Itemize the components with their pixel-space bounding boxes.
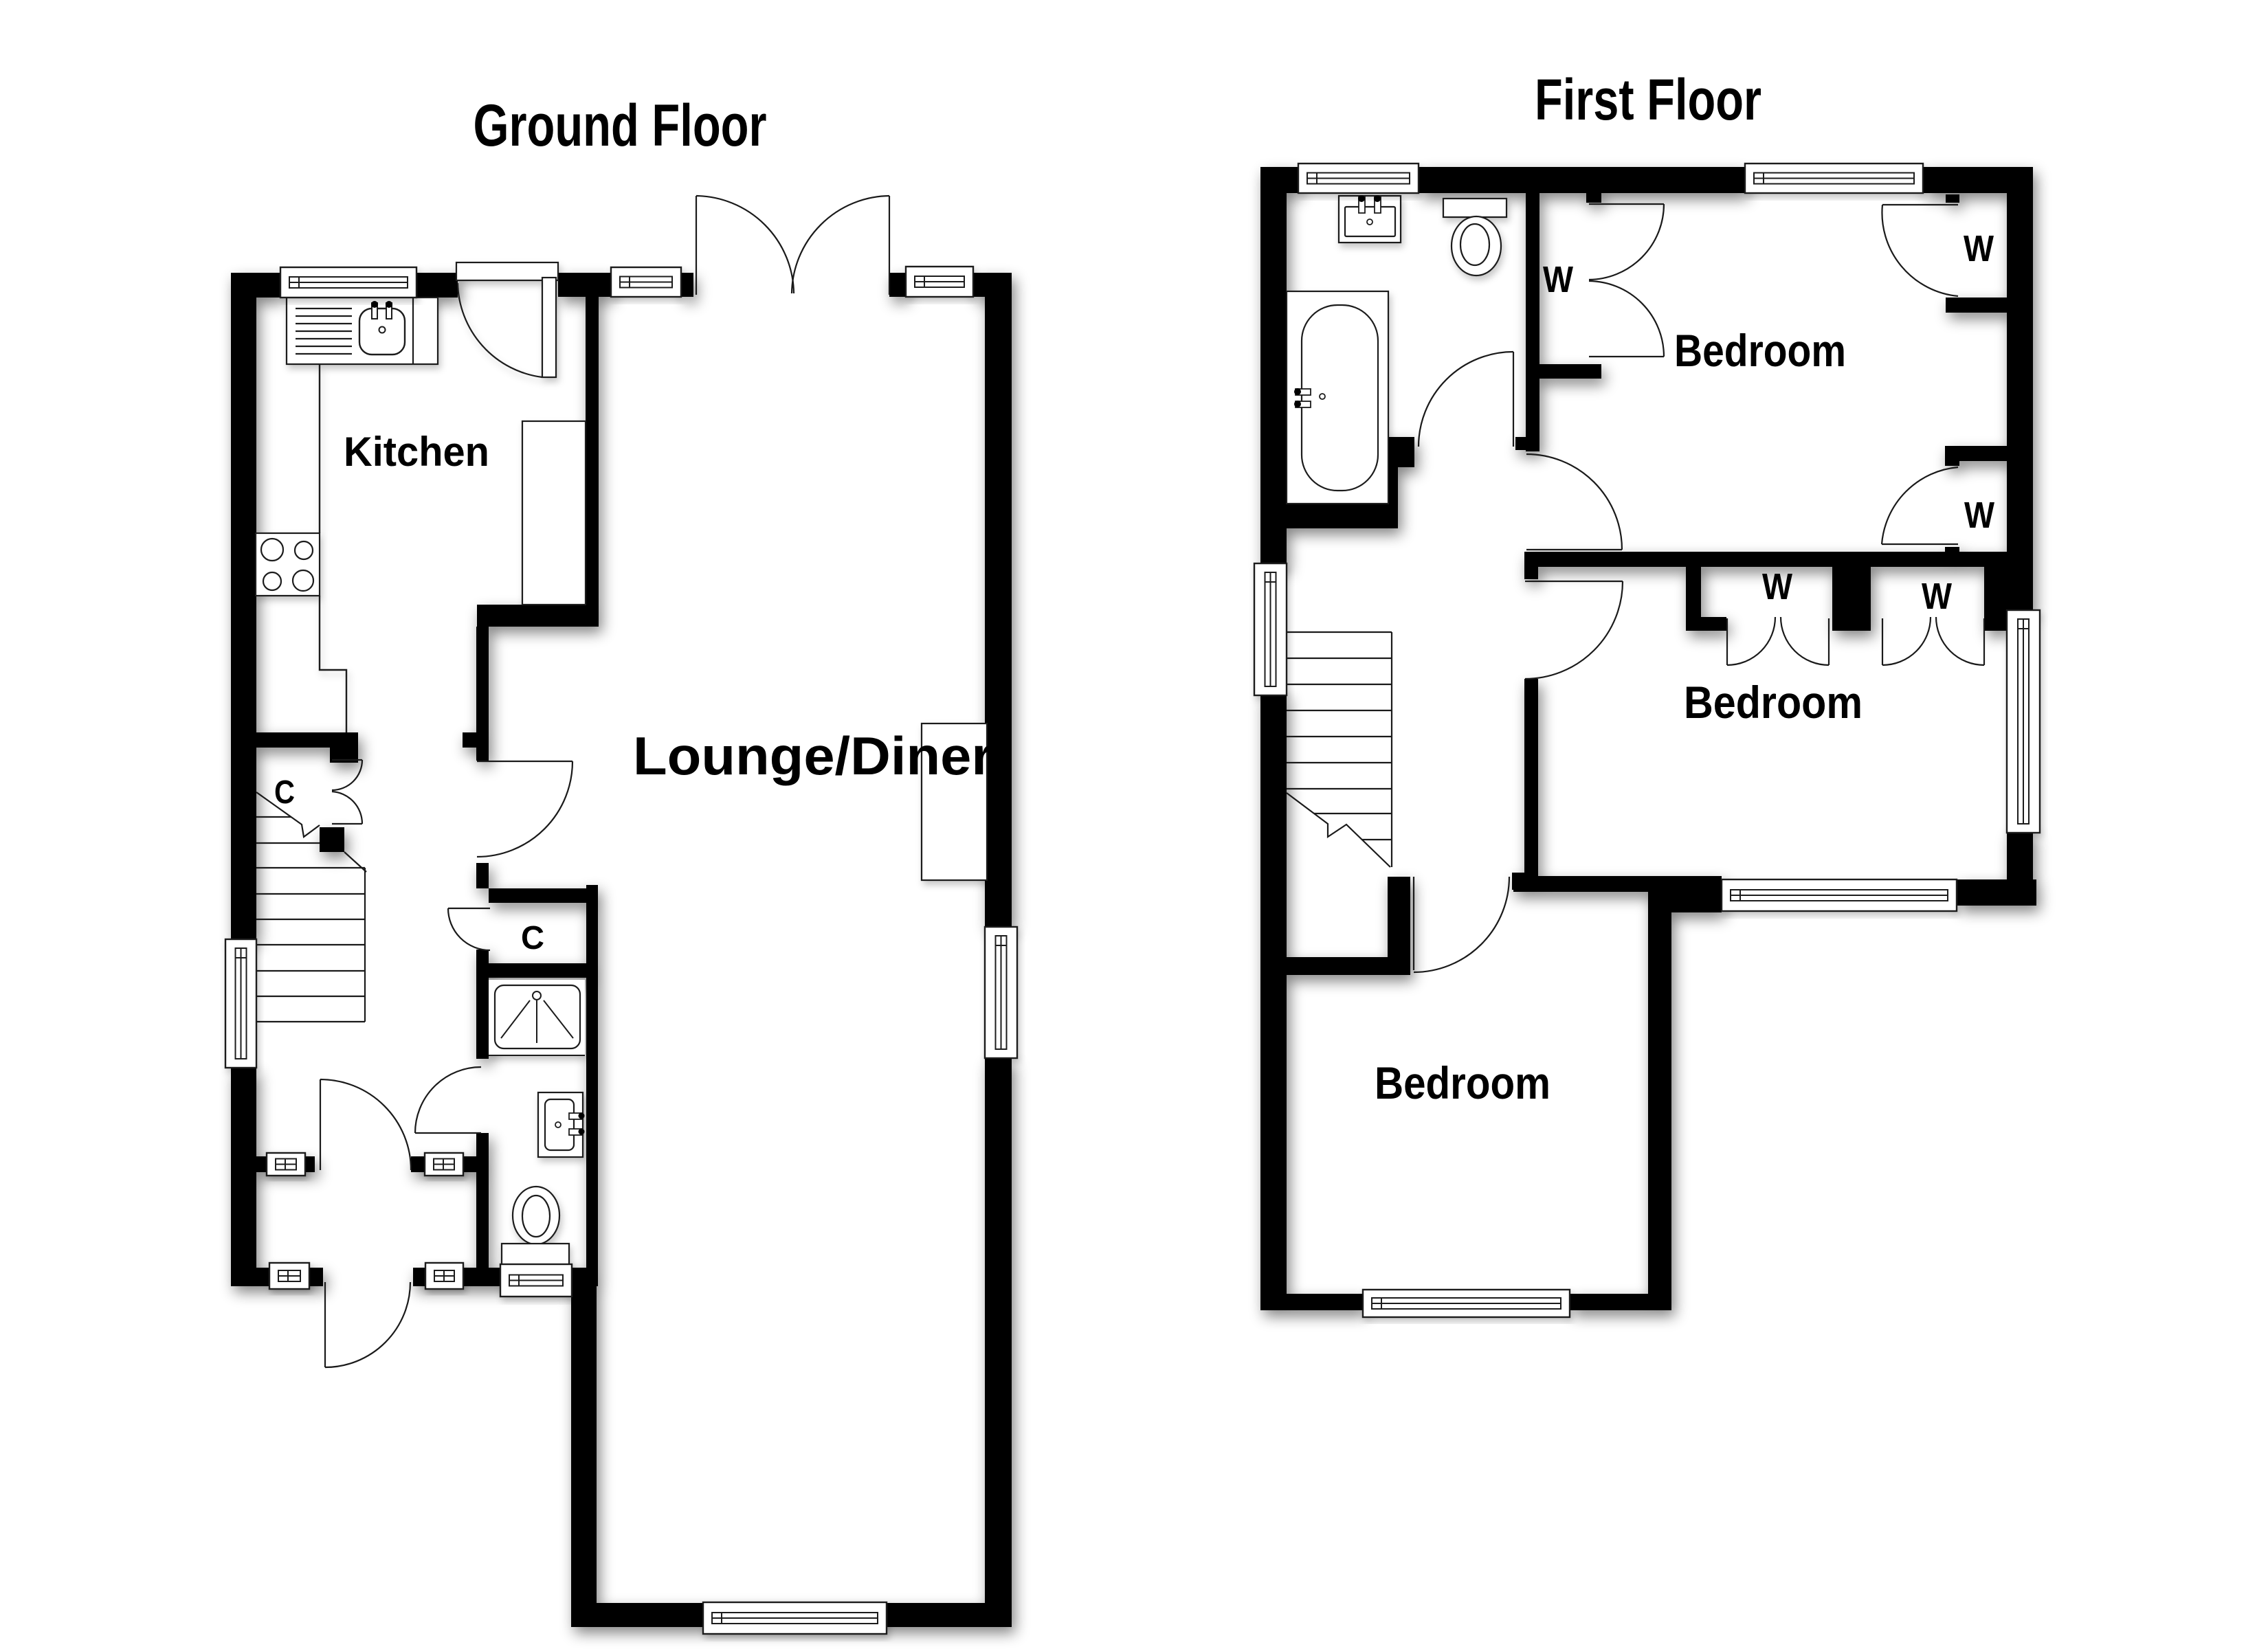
svg-text:Bedroom: Bedroom bbox=[1674, 325, 1846, 376]
svg-text:C: C bbox=[274, 774, 295, 811]
svg-text:Bedroom: Bedroom bbox=[1684, 677, 1863, 728]
svg-text:W: W bbox=[1964, 495, 1994, 536]
svg-text:W: W bbox=[1543, 259, 1573, 300]
svg-text:Kitchen: Kitchen bbox=[344, 429, 489, 475]
svg-text:First Floor: First Floor bbox=[1535, 67, 1761, 132]
svg-text:Ground Floor: Ground Floor bbox=[474, 93, 767, 159]
svg-text:W: W bbox=[1922, 576, 1952, 617]
svg-text:C: C bbox=[521, 920, 544, 956]
svg-text:W: W bbox=[1762, 566, 1792, 607]
svg-text:W: W bbox=[1964, 228, 1994, 269]
svg-text:Lounge/Diner: Lounge/Diner bbox=[633, 726, 993, 786]
svg-text:Bedroom: Bedroom bbox=[1375, 1057, 1550, 1108]
